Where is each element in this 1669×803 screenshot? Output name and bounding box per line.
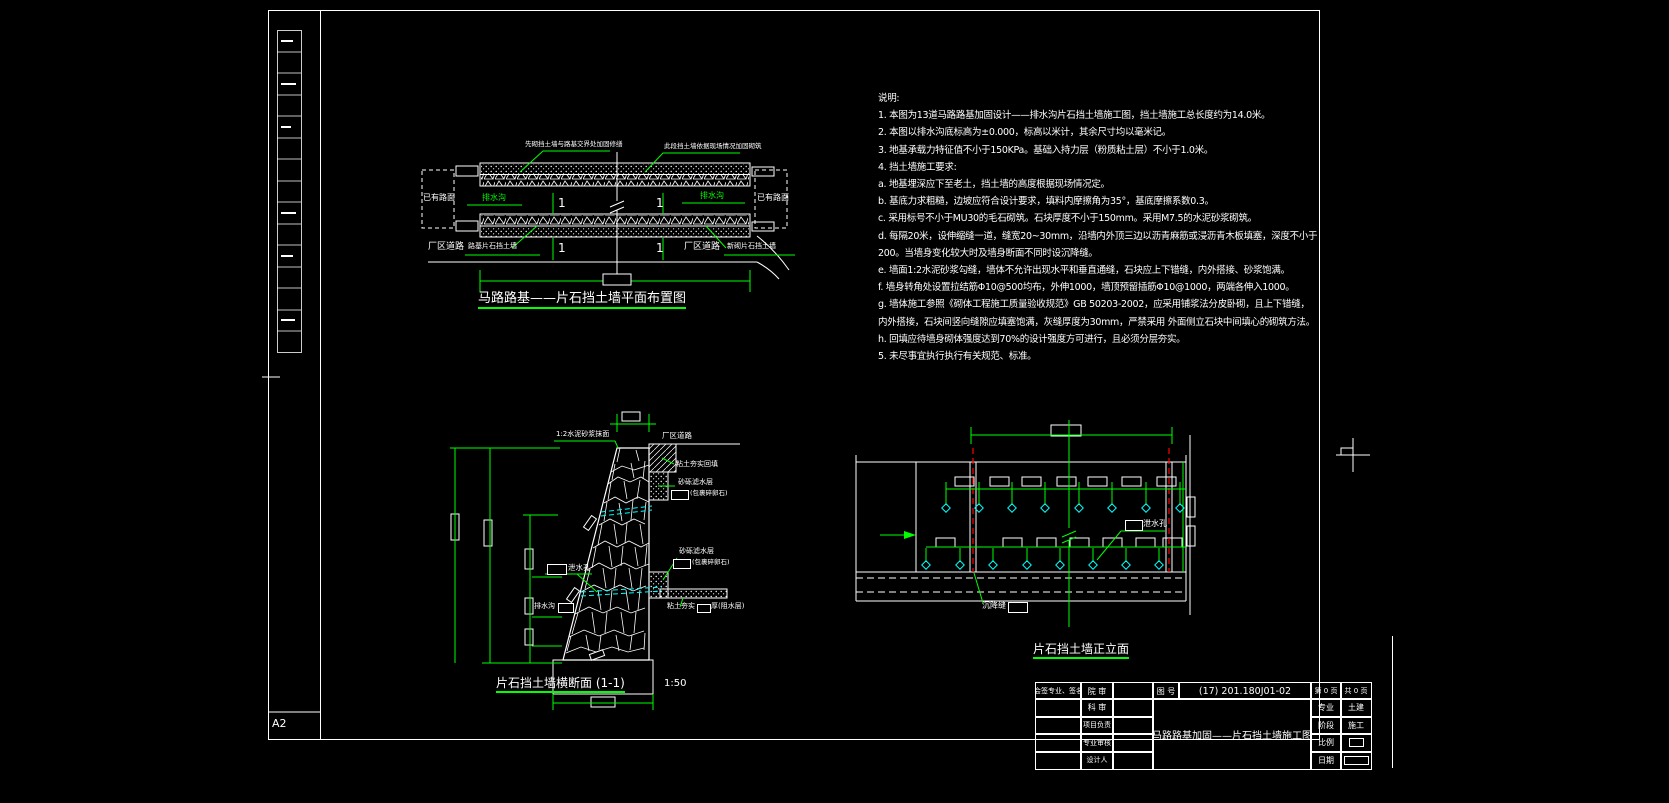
plan-leader-top-left: 先砌挡土墙与路基交界处加固修缮 (525, 141, 623, 148)
plan-drain-label-right: 排水沟 (700, 192, 724, 200)
section-seal-suffix: 厚(阻水层) (711, 603, 744, 610)
elevation-weep-label: 泄水孔 (1143, 520, 1167, 528)
section-filter-upper-label: 砂砾滤水层 (678, 479, 713, 486)
meta-value-date (1340, 751, 1372, 771)
note-line: g. 墙体施工参照《砌体工程施工质量验收规范》GB 50203-2002，应采用… (878, 296, 1318, 313)
plan-leader-bottom-right: 新砌片石挡土墙 (727, 243, 776, 250)
note-line: a. 地基埋深应下至老土，挡土墙的高度根据现场情况定。 (878, 176, 1318, 193)
dim-placeholder-box (1125, 520, 1143, 531)
registration-mark (1336, 438, 1370, 472)
note-line: 3. 地基承载力特征值不小于150KPa。基础入持力层（粉质粘土层）不小于1.0… (878, 142, 1318, 159)
note-line: 内外搭接，石块间竖向缝隙应填塞饱满，灰缝厚度为30mm，严禁采用 外面侧立石块中… (878, 314, 1318, 331)
titleblock-row-label: 设计人 (1080, 751, 1114, 771)
scale-box (1349, 738, 1364, 747)
section-plaster-label: 1:2水泥砂浆抹面 (556, 431, 609, 438)
note-line: 1. 本图为13道马路路基加固设计——排水沟片石挡土墙施工图，挡土墙施工总长度约… (878, 107, 1318, 124)
note-line: d. 每隔20米，设伸缩缝一道，缝宽20~30mm，沿墙内外顶三边以沥青麻筋或浸… (878, 228, 1318, 245)
dim-placeholder-box (1008, 602, 1028, 613)
section-seal-prefix: 粘土夯实 (667, 603, 695, 610)
note-line: 4. 挡土墙施工要求: (878, 159, 1318, 176)
dim-placeholder-box (673, 559, 691, 569)
note-line: e. 墙面1:2水泥砂浆勾缝，墙体不允许出现水平和垂直通缝，石块应上下错缝，内外… (878, 262, 1318, 279)
section-mark-1c: 1 (558, 242, 566, 254)
note-line: f. 墙身转角处设置拉结筋Φ10@500均布，外伸1000，墙顶预留插筋Φ10@… (878, 279, 1318, 296)
section-filter-upper-note: (包裹碎卵石) (690, 490, 728, 497)
titleblock-sign-cell (1112, 751, 1154, 771)
revision-strip (277, 31, 302, 353)
section-filter-lower-note: (包裹碎卵石) (692, 559, 730, 566)
elevation-joint-label: 沉降缝 (982, 602, 1006, 610)
plan-existing-road-right: 已有路面 (757, 194, 789, 202)
section-mark-1d: 1 (656, 242, 664, 254)
plan-leader-bottom-left: 路基片石挡土墙 (468, 243, 517, 250)
notes-block: 说明: 1. 本图为13道马路路基加固设计——排水沟片石挡土墙施工图，挡土墙施工… (878, 90, 1318, 365)
section-title: 片石挡土墙横断面 (1-1) (496, 677, 625, 693)
cad-sheet: 已有路面 已有路面 排水沟 排水沟 1 1 1 1 先砌挡土墙与路基交界处加固修… (0, 0, 1669, 803)
date-box (1344, 756, 1369, 765)
plan-leader-top-right: 此段挡土墙依据现场情况加固砌筑 (664, 143, 762, 150)
drawing-title: 马路路基加固——片石挡土墙施工图 (1152, 698, 1312, 770)
note-line: 5. 未尽事宜执行执行有关规范、标准。 (878, 348, 1318, 365)
section-drain-label: 排水沟 (534, 603, 555, 610)
section-mark-1b: 1 (656, 197, 664, 209)
section-backfill-label: 粘土夯实回填 (676, 461, 718, 468)
plan-factory-road-right: 厂区道路 (684, 243, 720, 252)
dim-placeholder-box (547, 564, 567, 575)
section-mark-1a: 1 (558, 197, 566, 209)
section-weep-label: 泄水孔 (568, 564, 591, 572)
sheet-size-label: A2 (272, 718, 287, 729)
titleblock-sign-cell (1035, 751, 1082, 771)
note-line: 2. 本图以排水沟底标高为±0.000，标高以米计，其余尺寸均以毫米记。 (878, 124, 1318, 141)
note-line: b. 基底力求粗糙，边坡应符合设计要求，填料内摩擦角为35°，基底摩擦系数0.3… (878, 193, 1318, 210)
notes-heading: 说明: (878, 90, 1318, 107)
note-line: 200。当墙身变化较大时及墙身断面不同时设沉降缝。 (878, 245, 1318, 262)
note-line: c. 采用标号不小于MU30的毛石砌筑。石块厚度不小于150mm。采用M7.5的… (878, 210, 1318, 227)
dim-placeholder-box (671, 490, 689, 500)
dim-placeholder-box (697, 604, 711, 613)
meta-label: 日期 (1310, 751, 1342, 771)
plan-drain-label-left: 排水沟 (482, 194, 506, 202)
section-scale: 1:50 (664, 679, 686, 689)
section-road-label: 厂区道路 (662, 432, 692, 440)
plan-factory-road-left: 厂区道路 (428, 243, 464, 252)
section-filter-lower-label: 砂砾滤水层 (679, 548, 714, 555)
dim-placeholder-box (558, 603, 574, 613)
plan-title: 马路路基——片石挡土墙平面布置图 (478, 292, 686, 309)
plan-linework (422, 151, 795, 292)
note-line: h. 回填应待墙身砌体强度达到70%的设计强度方可进行，且必须分层夯实。 (878, 331, 1318, 348)
title-block: 会签专业、签名 院 审 图 号 (17) 201.180J01-02 第 0 页… (1035, 682, 1370, 768)
elevation-title: 片石挡土墙正立面 (1033, 643, 1129, 659)
cad-linework (0, 0, 1669, 803)
plan-existing-road-left: 已有路面 (423, 194, 455, 202)
